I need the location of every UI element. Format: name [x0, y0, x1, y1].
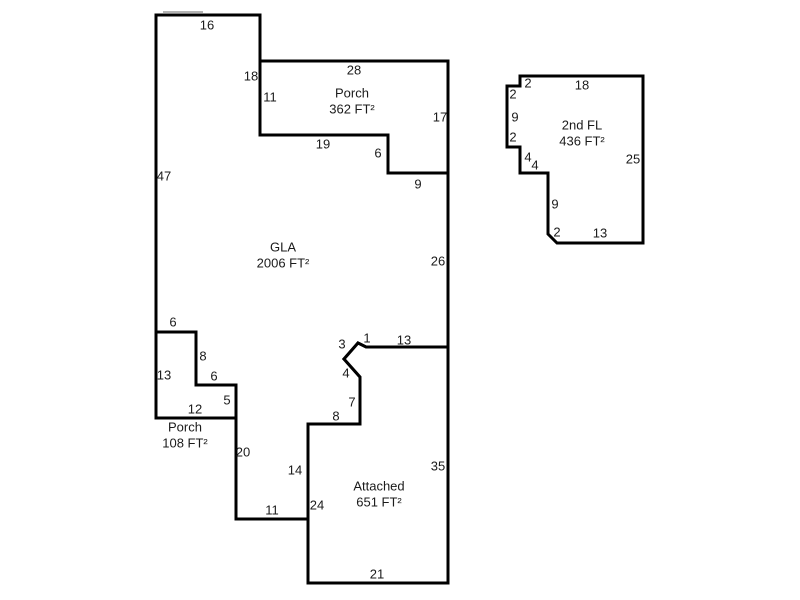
dimension-label: 14 — [288, 463, 302, 478]
dimension-label: 35 — [431, 459, 445, 474]
dimension-label: 11 — [263, 90, 277, 105]
dimension-label: 2 — [524, 76, 531, 91]
dimension-label: 6 — [374, 146, 381, 161]
dimension-label: 7 — [348, 395, 355, 410]
dimension-label: 9 — [414, 177, 421, 192]
dimension-label: 47 — [157, 169, 171, 184]
dimension-label: 19 — [316, 137, 330, 152]
dimension-label: 13 — [157, 368, 171, 383]
area-label-attached-garage-line1: Attached — [353, 479, 404, 494]
dimension-label: 17 — [433, 110, 447, 125]
area-label-porch-upper-line2: 362 FT² — [329, 102, 375, 117]
dimension-label: 28 — [347, 63, 361, 78]
dimension-label: 1 — [363, 331, 370, 346]
dimension-label: 4 — [531, 158, 538, 173]
dimension-label: 9 — [551, 197, 558, 212]
dimension-label: 8 — [199, 349, 206, 364]
dimension-label: 16 — [200, 18, 214, 33]
area-label-second-floor-line1: 2nd FL — [562, 118, 602, 133]
dimension-label: 4 — [342, 366, 349, 381]
dimension-label: 6 — [169, 315, 176, 330]
dimension-label: 11 — [265, 503, 279, 518]
dimension-label: 9 — [511, 110, 518, 125]
dimension-label: 5 — [223, 393, 230, 408]
dimension-label: 25 — [626, 152, 640, 167]
dimension-label: 18 — [575, 78, 589, 93]
dimension-label: 3 — [338, 337, 345, 352]
dimension-label: 13 — [397, 333, 411, 348]
area-label-second-floor-line2: 436 FT² — [559, 134, 605, 149]
dimension-label: 6 — [210, 369, 217, 384]
dimension-label: 2 — [553, 225, 560, 240]
area-label-porch-upper-line1: Porch — [335, 86, 369, 101]
dimension-label: 18 — [244, 69, 258, 84]
dimension-label: 13 — [593, 226, 607, 241]
area-label-gla-line2: 2006 FT² — [257, 256, 310, 271]
area-label-gla-line1: GLA — [270, 240, 296, 255]
dimension-label: 8 — [332, 409, 339, 424]
dimension-label: 2 — [509, 130, 516, 145]
area-label-attached-garage-line2: 651 FT² — [356, 495, 402, 510]
floorplan-page: GLA2006 FT²Porch362 FT²Porch108 FT²Attac… — [0, 0, 800, 600]
dimension-label: 2 — [509, 87, 516, 102]
floorplan-sketch: GLA2006 FT²Porch362 FT²Porch108 FT²Attac… — [0, 0, 800, 600]
dimension-label: 12 — [188, 402, 202, 417]
area-label-porch-lower-line2: 108 FT² — [162, 436, 208, 451]
dimension-label: 26 — [431, 254, 445, 269]
dimension-label: 21 — [370, 567, 384, 582]
dimension-label: 24 — [310, 498, 324, 513]
dimension-label: 20 — [236, 445, 250, 460]
area-label-porch-lower-line1: Porch — [168, 420, 202, 435]
